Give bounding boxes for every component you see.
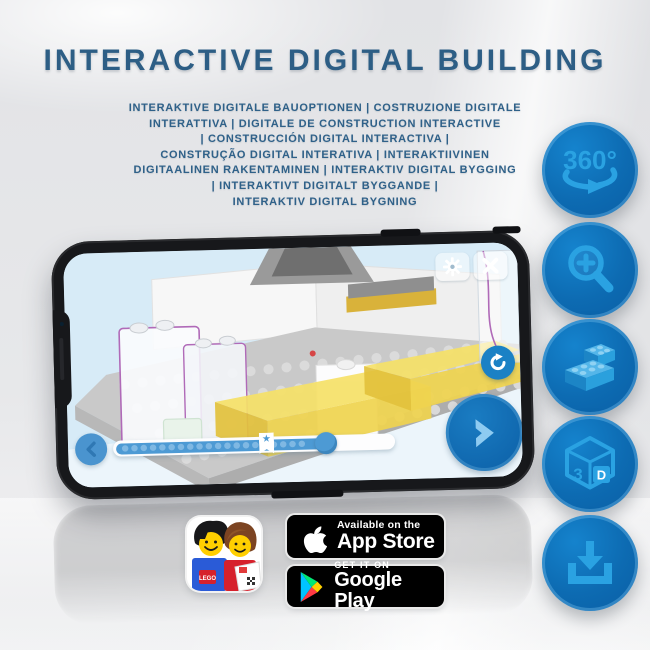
- volume-button: [380, 229, 420, 237]
- cube-d-label: D: [597, 468, 606, 483]
- zoom-in-icon: [560, 240, 620, 300]
- feature-download: [542, 515, 638, 611]
- subtitle-line: INTERAKTIVE DIGITALE BAUOPTIONEN | COSTR…: [0, 101, 650, 117]
- feature-360-rotation: 360°: [542, 122, 638, 218]
- lego-minifigures-art: LEGO: [187, 517, 261, 591]
- page-title: INTERACTIVE DIGITAL BUILDING: [0, 44, 650, 78]
- apple-logo-icon: [299, 521, 327, 553]
- speaker-slit: [59, 338, 64, 380]
- lego-logo-text: LEGO: [199, 576, 216, 582]
- close-icon: [482, 258, 498, 274]
- download-icon: [560, 533, 620, 593]
- cube-3d-icon: 3 D: [560, 434, 620, 494]
- chevron-left-icon: [85, 441, 97, 457]
- gear-icon: [442, 257, 463, 278]
- chevron-right-icon: [471, 416, 498, 449]
- app-store-badge[interactable]: Available on the App Store: [287, 515, 444, 558]
- feature-3d-view: 3 D: [542, 416, 638, 512]
- rotate-view-icon: [488, 352, 509, 373]
- google-play-name: Google Play: [334, 570, 444, 612]
- lego-app-icon[interactable]: LEGO: [187, 517, 261, 591]
- app-store-name: App Store: [337, 531, 435, 553]
- app-screen: ★: [63, 242, 523, 488]
- settings-button[interactable]: [435, 252, 470, 281]
- rotate-360-icon: 360°: [557, 139, 623, 201]
- google-play-icon: [299, 572, 324, 602]
- 360-label: 360°: [563, 145, 617, 175]
- feature-bricks: [542, 319, 638, 415]
- power-button: [492, 226, 520, 234]
- close-button[interactable]: [473, 251, 508, 280]
- front-camera: [60, 322, 64, 326]
- feature-zoom: [542, 222, 638, 318]
- lego-brick-icon: [560, 337, 620, 397]
- marketing-page: INTERACTIVE DIGITAL BUILDING INTERAKTIVE…: [0, 0, 650, 650]
- phone-notch: [52, 310, 72, 408]
- cube-3-label: 3: [573, 465, 582, 484]
- subtitle-line: INTERATTIVA | DIGITALE DE CONSTRUCTION I…: [0, 117, 650, 133]
- google-play-badge[interactable]: GET IT ON Google Play: [287, 566, 444, 607]
- star-icon: ★: [262, 433, 271, 446]
- phone-mockup: ★: [51, 230, 536, 500]
